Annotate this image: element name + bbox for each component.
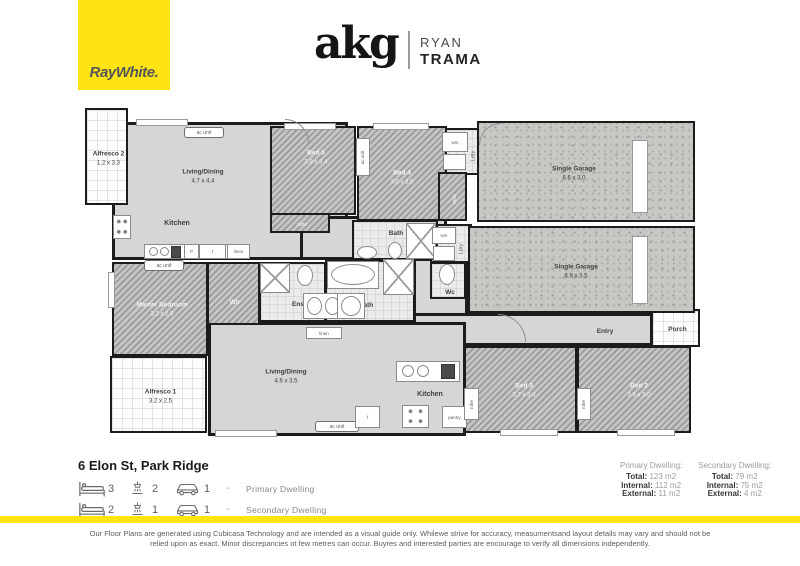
shower-box <box>260 263 290 293</box>
ac-unit-badge-label: ac unit <box>330 424 345 430</box>
room-label-master-bedroom: Master Bedroom3.2 x 2.9 <box>136 302 187 319</box>
basin-icon <box>357 246 377 259</box>
room-label-wc: Wc <box>445 289 455 297</box>
ac-unit-badge: ac unit <box>315 421 359 432</box>
dishwasher-icon <box>171 246 181 258</box>
laundry-label-label: Ldry <box>458 244 464 255</box>
dwelling-label: Secondary Dwelling <box>246 505 327 515</box>
window-opening <box>632 140 648 213</box>
pantry-box: P <box>184 244 199 259</box>
window-opening <box>632 236 648 304</box>
room-walk-in-robe: WIr <box>207 262 260 325</box>
room-label-walk-in-robe: WIr <box>230 299 240 307</box>
robe-box-label: robe <box>581 399 586 408</box>
window-opening <box>136 119 188 126</box>
bed-count: 3 <box>108 483 130 495</box>
room-porch: Porch <box>651 309 700 347</box>
window-opening <box>500 429 558 436</box>
area-row: External: 4 m2 <box>698 490 771 499</box>
spec-row-primary: 321-Primary Dwelling <box>78 478 327 499</box>
room-alfresco-1: Alfresco 13.2 x 2.5 <box>110 356 207 433</box>
floorplan-flyer: RayWhite. akg RYAN TRAMA Living/Dining4.… <box>0 0 800 566</box>
area-key: External: <box>708 489 744 498</box>
laundry-tub <box>443 154 466 170</box>
ac-unit-badge: ac unit <box>184 127 224 138</box>
linen-box: linen <box>227 244 250 259</box>
room-bed-3: Bed 33.7 x 3.0 <box>464 346 577 433</box>
laundry-tub <box>433 246 455 261</box>
area-col-primary: Primary Dwelling:Total: 123 m2Internal: … <box>620 461 682 499</box>
disclaimer: Our Floor Plans are generated using Cubi… <box>0 529 800 549</box>
sink-icon <box>160 247 169 256</box>
room-robe-bed-5: robe <box>270 213 330 233</box>
spec-separator: - <box>226 504 246 515</box>
fridge-box: f <box>355 406 380 428</box>
room-robe-bed-4: robe <box>438 172 467 221</box>
room-alfresco-2: Alfresco 21.2 x 3.3 <box>85 108 128 205</box>
stove-icon <box>113 215 131 239</box>
basin-icon <box>307 297 322 315</box>
toilet-icon <box>439 264 455 285</box>
room-label-bed-2: Bed 23.6 x 3.0 <box>627 383 650 400</box>
room-master-bedroom: Master Bedroom3.2 x 2.9 <box>112 262 208 356</box>
fridge-box-label: f <box>367 415 368 420</box>
kitchen-label-label: Kitchen <box>417 391 443 398</box>
robe-box: robe <box>577 388 591 420</box>
robe-box-label: robe <box>469 399 474 408</box>
pantry-box-label: pantry <box>448 415 461 420</box>
ac-unit-badge: ac unit <box>144 260 184 271</box>
shower-box <box>383 259 414 295</box>
room-label-bath-secondary: Bath <box>389 230 403 238</box>
room-label-bed-4: Bed 43.0 x 3.0 <box>390 170 413 187</box>
kitchen-label: Kitchen <box>398 388 462 400</box>
robe-box: robe <box>464 388 479 420</box>
room-label-garage-secondary: Single Garage6.6 x 3.0 <box>552 166 596 183</box>
fridge-box: f <box>199 244 226 259</box>
room-label-alfresco-2: Alfresco 21.2 x 3.3 <box>93 150 124 167</box>
bed-count: 2 <box>108 504 130 516</box>
toilet-icon <box>297 265 313 286</box>
pantry-box-label: P <box>190 249 193 254</box>
room-label-garage-primary: Single Garage6.9 x 3.5 <box>554 264 598 281</box>
window-opening <box>617 429 675 436</box>
kitchen-label: Kitchen <box>145 217 209 229</box>
bed-icon <box>78 481 108 497</box>
room-bed-5: Bed 52.8 x 3.4 <box>270 126 356 215</box>
car-count: 1 <box>204 504 226 516</box>
room-bed-2: Bed 23.6 x 3.0 <box>577 346 691 433</box>
area-col-title: Secondary Dwelling: <box>698 461 771 470</box>
property-address: 6 Elon St, Park Ridge <box>78 458 209 473</box>
area-key: External: <box>622 489 658 498</box>
car-count: 1 <box>204 483 226 495</box>
disclaimer-line-2: relied upon as exact. Minor discrepancie… <box>150 539 650 548</box>
linen-box-label: linen <box>234 249 244 254</box>
dwelling-label: Primary Dwelling <box>246 484 327 494</box>
area-value: 11 m2 <box>659 489 681 498</box>
area-value: 4 m2 <box>744 489 762 498</box>
area-col-secondary: Secondary Dwelling:Total: 79 m2Internal:… <box>698 461 771 499</box>
kitchen-label-label: Kitchen <box>164 220 190 227</box>
room-label-alfresco-1: Alfresco 13.2 x 2.5 <box>145 388 176 405</box>
room-label-porch: Porch <box>668 326 686 334</box>
washing-machine-box-label: wm <box>452 140 459 145</box>
room-label-bed-5: Bed 52.8 x 3.4 <box>304 150 327 167</box>
area-row: External: 11 m2 <box>620 490 682 499</box>
window-opening <box>108 272 115 308</box>
ac-unit-badge-label: ac unit <box>157 263 172 269</box>
room-label-robe-bed-4: robe <box>451 193 459 203</box>
basin-icon <box>341 296 361 316</box>
room-label-robe-bed-5: robe <box>297 221 307 229</box>
dwelling-specs: 321-Primary Dwelling211-Secondary Dwelli… <box>78 478 327 520</box>
laundry-label: Ldry <box>453 231 469 267</box>
linen-box-label: linen <box>319 331 329 336</box>
sink-icon <box>417 365 429 377</box>
area-summary: Primary Dwelling:Total: 123 m2Internal: … <box>620 461 771 499</box>
sink-icon <box>149 247 158 256</box>
room-garage-secondary: Single Garage6.6 x 3.0 <box>477 121 695 222</box>
linen-box: linen <box>306 327 342 339</box>
room-label-living-dining-secondary: Living/Dining4.7 x 4.4 <box>182 169 223 186</box>
dishwasher-icon <box>441 364 455 379</box>
bath-count: 1 <box>152 504 174 516</box>
toilet-icon <box>388 242 402 259</box>
shower-icon <box>130 480 152 497</box>
room-label-bed-3: Bed 33.7 x 3.0 <box>512 383 535 400</box>
room-label-living-dining-primary: Living/Dining4.6 x 3.5 <box>265 369 306 386</box>
room-label-entry: Entry <box>597 328 614 336</box>
washing-machine-box-label: wm <box>441 233 448 238</box>
brand-bar <box>0 516 800 523</box>
room-bed-4: Bed 43.0 x 3.0 <box>357 126 447 221</box>
bath-count: 2 <box>152 483 174 495</box>
room-garage-primary: Single Garage6.9 x 3.5 <box>468 226 695 313</box>
ac-unit-badge-label: ac unit <box>197 130 212 136</box>
ac-unit-badge-label: ac unit <box>361 150 366 163</box>
bathtub-icon <box>331 264 375 285</box>
area-col-title: Primary Dwelling: <box>620 461 682 470</box>
laundry-label-label: Ldry <box>470 151 476 162</box>
car-icon <box>174 481 204 497</box>
disclaimer-line-1: Our Floor Plans are generated using Cubi… <box>90 529 711 538</box>
sink-icon <box>402 365 414 377</box>
window-opening <box>215 430 277 437</box>
stove-icon <box>402 405 429 428</box>
window-opening <box>373 123 429 130</box>
ac-unit-badge: ac unit <box>356 138 370 176</box>
spec-separator: - <box>226 483 246 494</box>
fridge-box-label: f <box>212 249 213 254</box>
